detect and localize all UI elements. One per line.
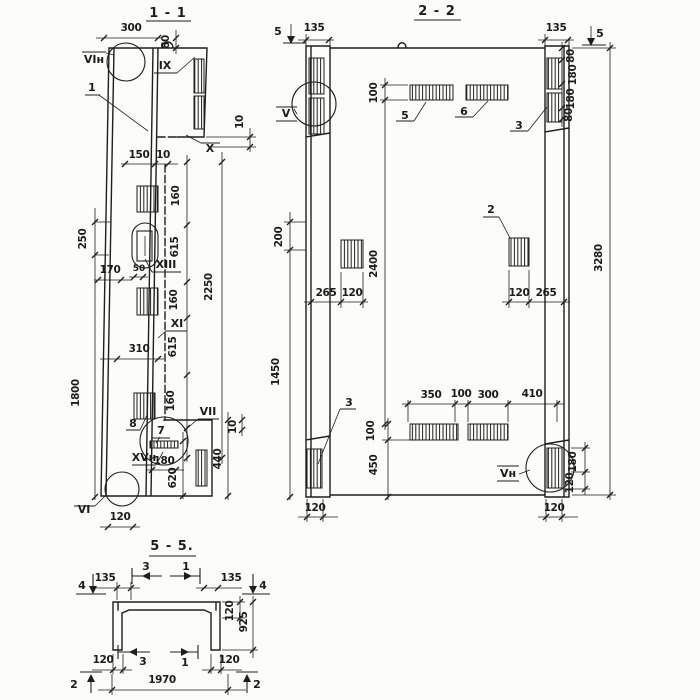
detail-label-v-n: Vн [500, 467, 516, 480]
part-label-2: 2 [487, 203, 495, 216]
drawing-sheet: 1 - 1 300 80 VIн 1 IX 10 X 150 10 160 61… [0, 0, 700, 700]
plate-right-flange-top-b [547, 93, 562, 122]
part-label-5: 5 [401, 109, 409, 122]
section-arrow-4-left [89, 586, 97, 594]
plate-mid-left [341, 240, 363, 268]
dim-10-mid: 10 [156, 149, 170, 161]
dim-180-right: 180 [567, 452, 579, 473]
section-5-5: 5 - 5. 4 135 3 1 135 4 120 925 120 3 1 1… [70, 539, 270, 695]
dim-350: 350 [421, 389, 442, 401]
part-label-1: 1 [88, 81, 96, 94]
section-mark-3-top: 3 [142, 560, 150, 573]
dim-150: 150 [129, 149, 150, 161]
dim-120-bottom-right-55: 120 [219, 654, 240, 666]
section-arrow-3-top [142, 572, 150, 580]
part-label-6: 6 [460, 105, 468, 118]
dim-120: 120 [110, 511, 131, 523]
dim-2250: 2250 [203, 273, 215, 301]
dim-200: 200 [273, 227, 285, 248]
plate-lower [134, 393, 155, 419]
plate-top-mid-b [466, 85, 508, 100]
dim-615-a: 615 [169, 237, 181, 258]
section-1-1: 1 - 1 300 80 VIн 1 IX 10 X 150 10 160 61… [70, 6, 256, 530]
section-mark-2-right: 2 [253, 678, 261, 691]
dim-100-mid: 100 [451, 388, 472, 400]
detail-circle-bottom [105, 472, 139, 506]
dim-10-top: 10 [234, 115, 246, 129]
dim-160-b: 160 [168, 290, 180, 311]
plate-bottom-mid-b [468, 424, 508, 440]
detail-label-x: X [206, 142, 215, 155]
section-arrow-1-top [184, 572, 192, 580]
plate-detail-7 [150, 441, 178, 448]
section-mark-2-left: 2 [70, 678, 78, 691]
dim-80: 80 [160, 35, 172, 49]
dim-440: 440 [212, 449, 224, 470]
dim-120-right-55: 120 [224, 601, 236, 622]
plate-top-mid-a [410, 85, 453, 100]
section-5-5-title: 5 - 5. [150, 539, 193, 554]
dim-160-c: 160 [165, 391, 177, 412]
section-arrow-2-right [243, 674, 251, 682]
embedded-plates-2-2 [307, 58, 562, 488]
dim-120-bottom-left: 120 [305, 502, 326, 514]
dim-135-left: 135 [304, 22, 325, 34]
section-2-2-title: 2 - 2 [418, 4, 456, 19]
dim-170: 170 [100, 264, 121, 276]
dim-1450: 1450 [270, 358, 282, 386]
dim-1800: 1800 [70, 379, 82, 407]
section-1-1-hidden-edges [158, 137, 178, 420]
dim-2400: 2400 [368, 250, 380, 278]
detail-label-xiii: XIII [156, 258, 177, 271]
dim-100-bottom: 100 [365, 421, 377, 442]
section-mark-1-top: 1 [182, 560, 190, 573]
plate-ix-b [194, 96, 204, 129]
dim-180: 180 [154, 455, 175, 467]
detail-label-xi: XI [171, 317, 184, 330]
technical-drawing: 1 - 1 300 80 VIн 1 IX 10 X 150 10 160 61… [0, 0, 700, 700]
dim-310: 310 [129, 343, 150, 355]
dim-250: 250 [77, 229, 89, 250]
detail-label-v: V [282, 107, 291, 120]
dim-80-b: 80 [563, 108, 575, 122]
dim-100-top: 100 [368, 83, 380, 104]
detail-label-vi-n: VIн [84, 53, 104, 66]
section-arrow-3-bottom [129, 648, 137, 656]
detail-label-ix: IX [159, 59, 172, 72]
section-mark-1-bottom: 1 [181, 656, 189, 669]
dim-135-left-55: 135 [95, 572, 116, 584]
dim-10-bottom: 10 [227, 420, 239, 434]
detail-label-xv-n: XVн [132, 451, 157, 464]
dim-160-a: 160 [170, 186, 182, 207]
dim-135-right: 135 [546, 22, 567, 34]
dim-265-right: 265 [536, 287, 557, 299]
dim-620: 620 [167, 468, 179, 489]
dim-80-a: 80 [565, 49, 577, 63]
plate-bottom-mid-a [410, 424, 458, 440]
plate-right-flange-bottom [547, 448, 562, 488]
section-mark-3-bottom: 3 [139, 655, 147, 668]
plate-left-flange-top-a [309, 58, 324, 94]
section-1-1-title: 1 - 1 [149, 6, 187, 21]
detail-label-vi: VI [78, 503, 91, 516]
part-label-3-top: 3 [515, 119, 523, 132]
section-mark-4-right: 4 [259, 579, 267, 592]
section-arrow-2-left [87, 674, 95, 682]
part-label-7: 7 [157, 424, 165, 437]
dim-lines-1-1 [94, 30, 256, 527]
detail-label-vii: VII [200, 405, 217, 418]
dim-615-b: 615 [167, 337, 179, 358]
dim-180-b: 180 [565, 89, 577, 110]
dim-300: 300 [121, 22, 142, 34]
dim-1970: 1970 [148, 674, 176, 686]
plate-bottom-right [196, 450, 207, 486]
dim-180-a: 180 [567, 65, 579, 86]
section-mark-5-left: 5 [274, 25, 282, 38]
dim-120-bottom-left-55: 120 [93, 654, 114, 666]
dim-120-right: 120 [509, 287, 530, 299]
dim-135-right-55: 135 [221, 572, 242, 584]
plate-left-flange-top-b [309, 98, 324, 134]
dim-120-left: 120 [342, 287, 363, 299]
plate-mid-right [509, 238, 529, 266]
plate-upper [137, 186, 158, 212]
dim-3280: 3280 [593, 244, 605, 272]
dim-450: 450 [368, 455, 380, 476]
dim-50: 50 [133, 264, 146, 274]
part-label-8: 8 [129, 417, 137, 430]
dim-300-bottom: 300 [478, 389, 499, 401]
dim-120-right-bottom: 120 [564, 473, 576, 494]
dim-925: 925 [238, 612, 250, 633]
section-mark-4-left: 4 [78, 579, 86, 592]
section-2-2: 2 - 2 5 135 135 5 80 180 180 80 V 100 5 … [270, 4, 616, 522]
dim-410: 410 [522, 388, 543, 400]
plate-ix-a [194, 59, 204, 93]
dim-265-left: 265 [316, 287, 337, 299]
section-mark-5-right: 5 [596, 27, 604, 40]
section-5-5-outline [113, 602, 220, 650]
plate-middle [137, 288, 158, 315]
plate-left-flange-bottom [307, 449, 322, 488]
section-arrow-1-bottom [181, 648, 189, 656]
dim-120-bottom-right: 120 [544, 502, 565, 514]
section-arrow-4-right [249, 586, 257, 594]
part-label-3-bottom: 3 [345, 396, 353, 409]
